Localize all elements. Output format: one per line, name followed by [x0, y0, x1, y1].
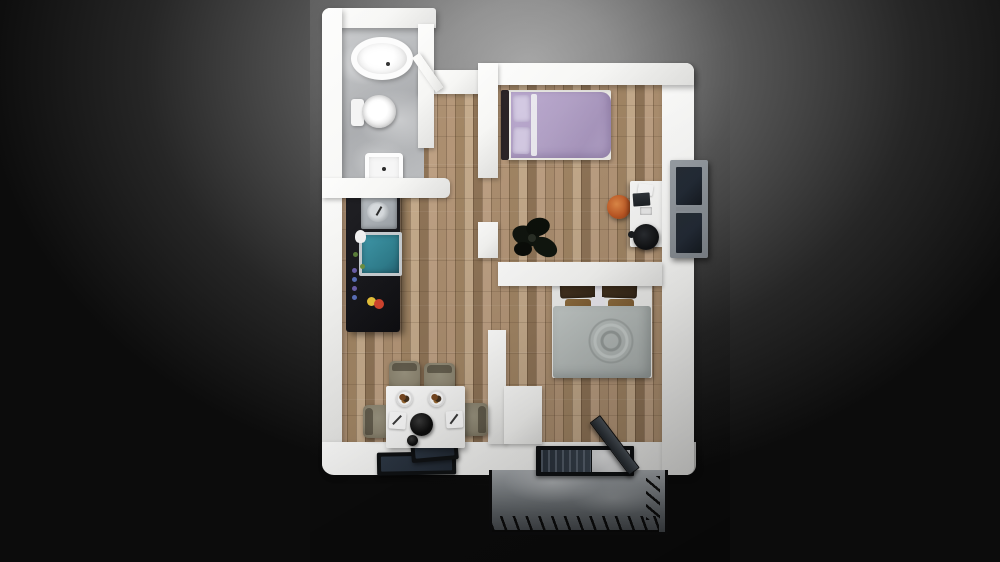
place-setting — [388, 411, 406, 429]
counter-knob — [352, 295, 357, 300]
place-setting — [446, 411, 464, 429]
single-bed-pillow — [513, 95, 531, 123]
bathtub — [351, 37, 413, 80]
window-pane — [676, 167, 702, 205]
wall-between-bedrooms — [498, 262, 662, 286]
single-bed-headboard — [501, 90, 509, 160]
counter-knob — [352, 286, 357, 291]
floor-plan-render — [0, 0, 1000, 562]
bathtub-drain — [386, 62, 390, 66]
plate-food — [430, 392, 443, 405]
kettle — [355, 230, 366, 243]
orange-stool — [607, 195, 631, 219]
wall-left — [322, 8, 342, 474]
chair-armrest — [628, 231, 635, 238]
office-chair — [633, 224, 659, 250]
entry-vestibule-block — [504, 386, 542, 444]
keyboard — [640, 207, 652, 215]
laptop — [633, 192, 651, 206]
knife-icon — [450, 414, 459, 425]
balcony-railing-right — [646, 476, 660, 520]
wall-bedroom1-left-lower — [478, 222, 498, 258]
balcony-railing-bottom — [492, 516, 659, 532]
chair-backrest — [478, 406, 486, 433]
chair-backrest — [392, 363, 417, 371]
fork-icon — [392, 415, 402, 425]
single-bed-pillow — [513, 127, 531, 155]
wall-bedroom1-left-upper — [478, 63, 498, 178]
chair-backrest — [427, 365, 452, 373]
sink-drain — [382, 167, 386, 171]
plate-food — [398, 392, 411, 405]
window-pane — [676, 213, 702, 253]
sheet-stripe — [531, 94, 537, 156]
entry-door-glass — [541, 450, 591, 472]
black-bowl — [410, 413, 433, 436]
plant-leaf — [514, 242, 532, 256]
herb-green — [353, 252, 358, 257]
plant-center — [528, 234, 536, 242]
counter-knob — [352, 268, 357, 273]
toilet — [362, 95, 396, 128]
plate — [428, 390, 445, 407]
window-crossbar — [676, 207, 702, 211]
fruit-red — [374, 299, 384, 309]
wall-top-bedroom — [480, 63, 694, 85]
wall-bathroom-bottom — [322, 178, 450, 198]
chair-backrest — [365, 408, 373, 435]
wall-right — [662, 63, 694, 475]
counter-knob — [352, 277, 357, 282]
herb-green — [360, 264, 365, 269]
black-cup — [407, 435, 418, 446]
plate — [396, 390, 413, 407]
